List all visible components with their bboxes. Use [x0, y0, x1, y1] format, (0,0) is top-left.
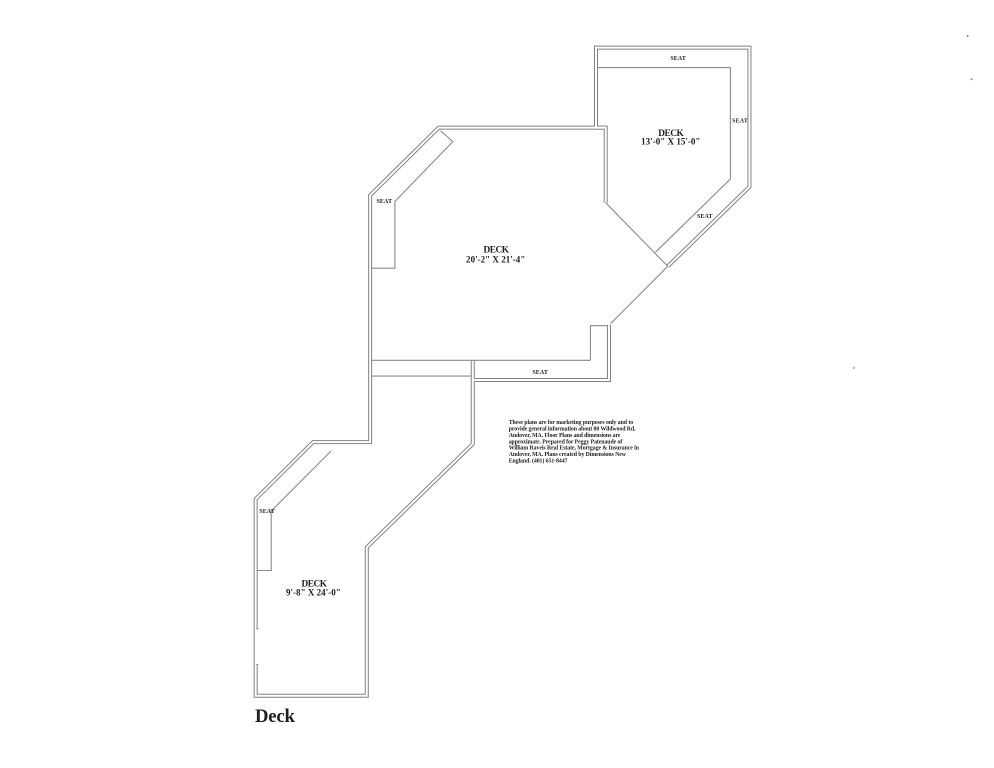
svg-text:William Raveis Real Estate, Mo: William Raveis Real Estate, Mortgage & I… [509, 446, 640, 452]
svg-text:13'-0" X 15'-0": 13'-0" X 15'-0" [641, 137, 700, 147]
svg-text:9'-8" X 24'-0": 9'-8" X 24'-0" [286, 587, 341, 597]
svg-text:England. (401) 651-8447: England. (401) 651-8447 [509, 457, 568, 464]
svg-text:20'-2" X 21'-4": 20'-2" X 21'-4" [466, 255, 525, 265]
svg-text:SEAT: SEAT [697, 214, 713, 220]
svg-text:SEAT: SEAT [670, 56, 686, 62]
svg-text:provide general information ab: provide general information about 80 Wil… [509, 427, 636, 433]
svg-text:Andover, MA. Plans created by: Andover, MA. Plans created by Dimensions… [509, 452, 627, 458]
svg-text:Andover, MA. Floor Plans and: Andover, MA. Floor Plans and dimensions … [509, 433, 621, 439]
svg-text:SEAT: SEAT [259, 509, 275, 515]
svg-text:These plans are for marketing: These plans are for marketing purposes o… [509, 420, 634, 426]
svg-text:SEAT: SEAT [532, 370, 548, 376]
svg-text:Deck: Deck [255, 706, 295, 727]
svg-text:SEAT: SEAT [732, 119, 748, 125]
svg-text:SEAT: SEAT [376, 199, 392, 205]
svg-text:approximate. Prepared for Peg: approximate. Prepared for Peggy Patenaud… [509, 439, 623, 445]
